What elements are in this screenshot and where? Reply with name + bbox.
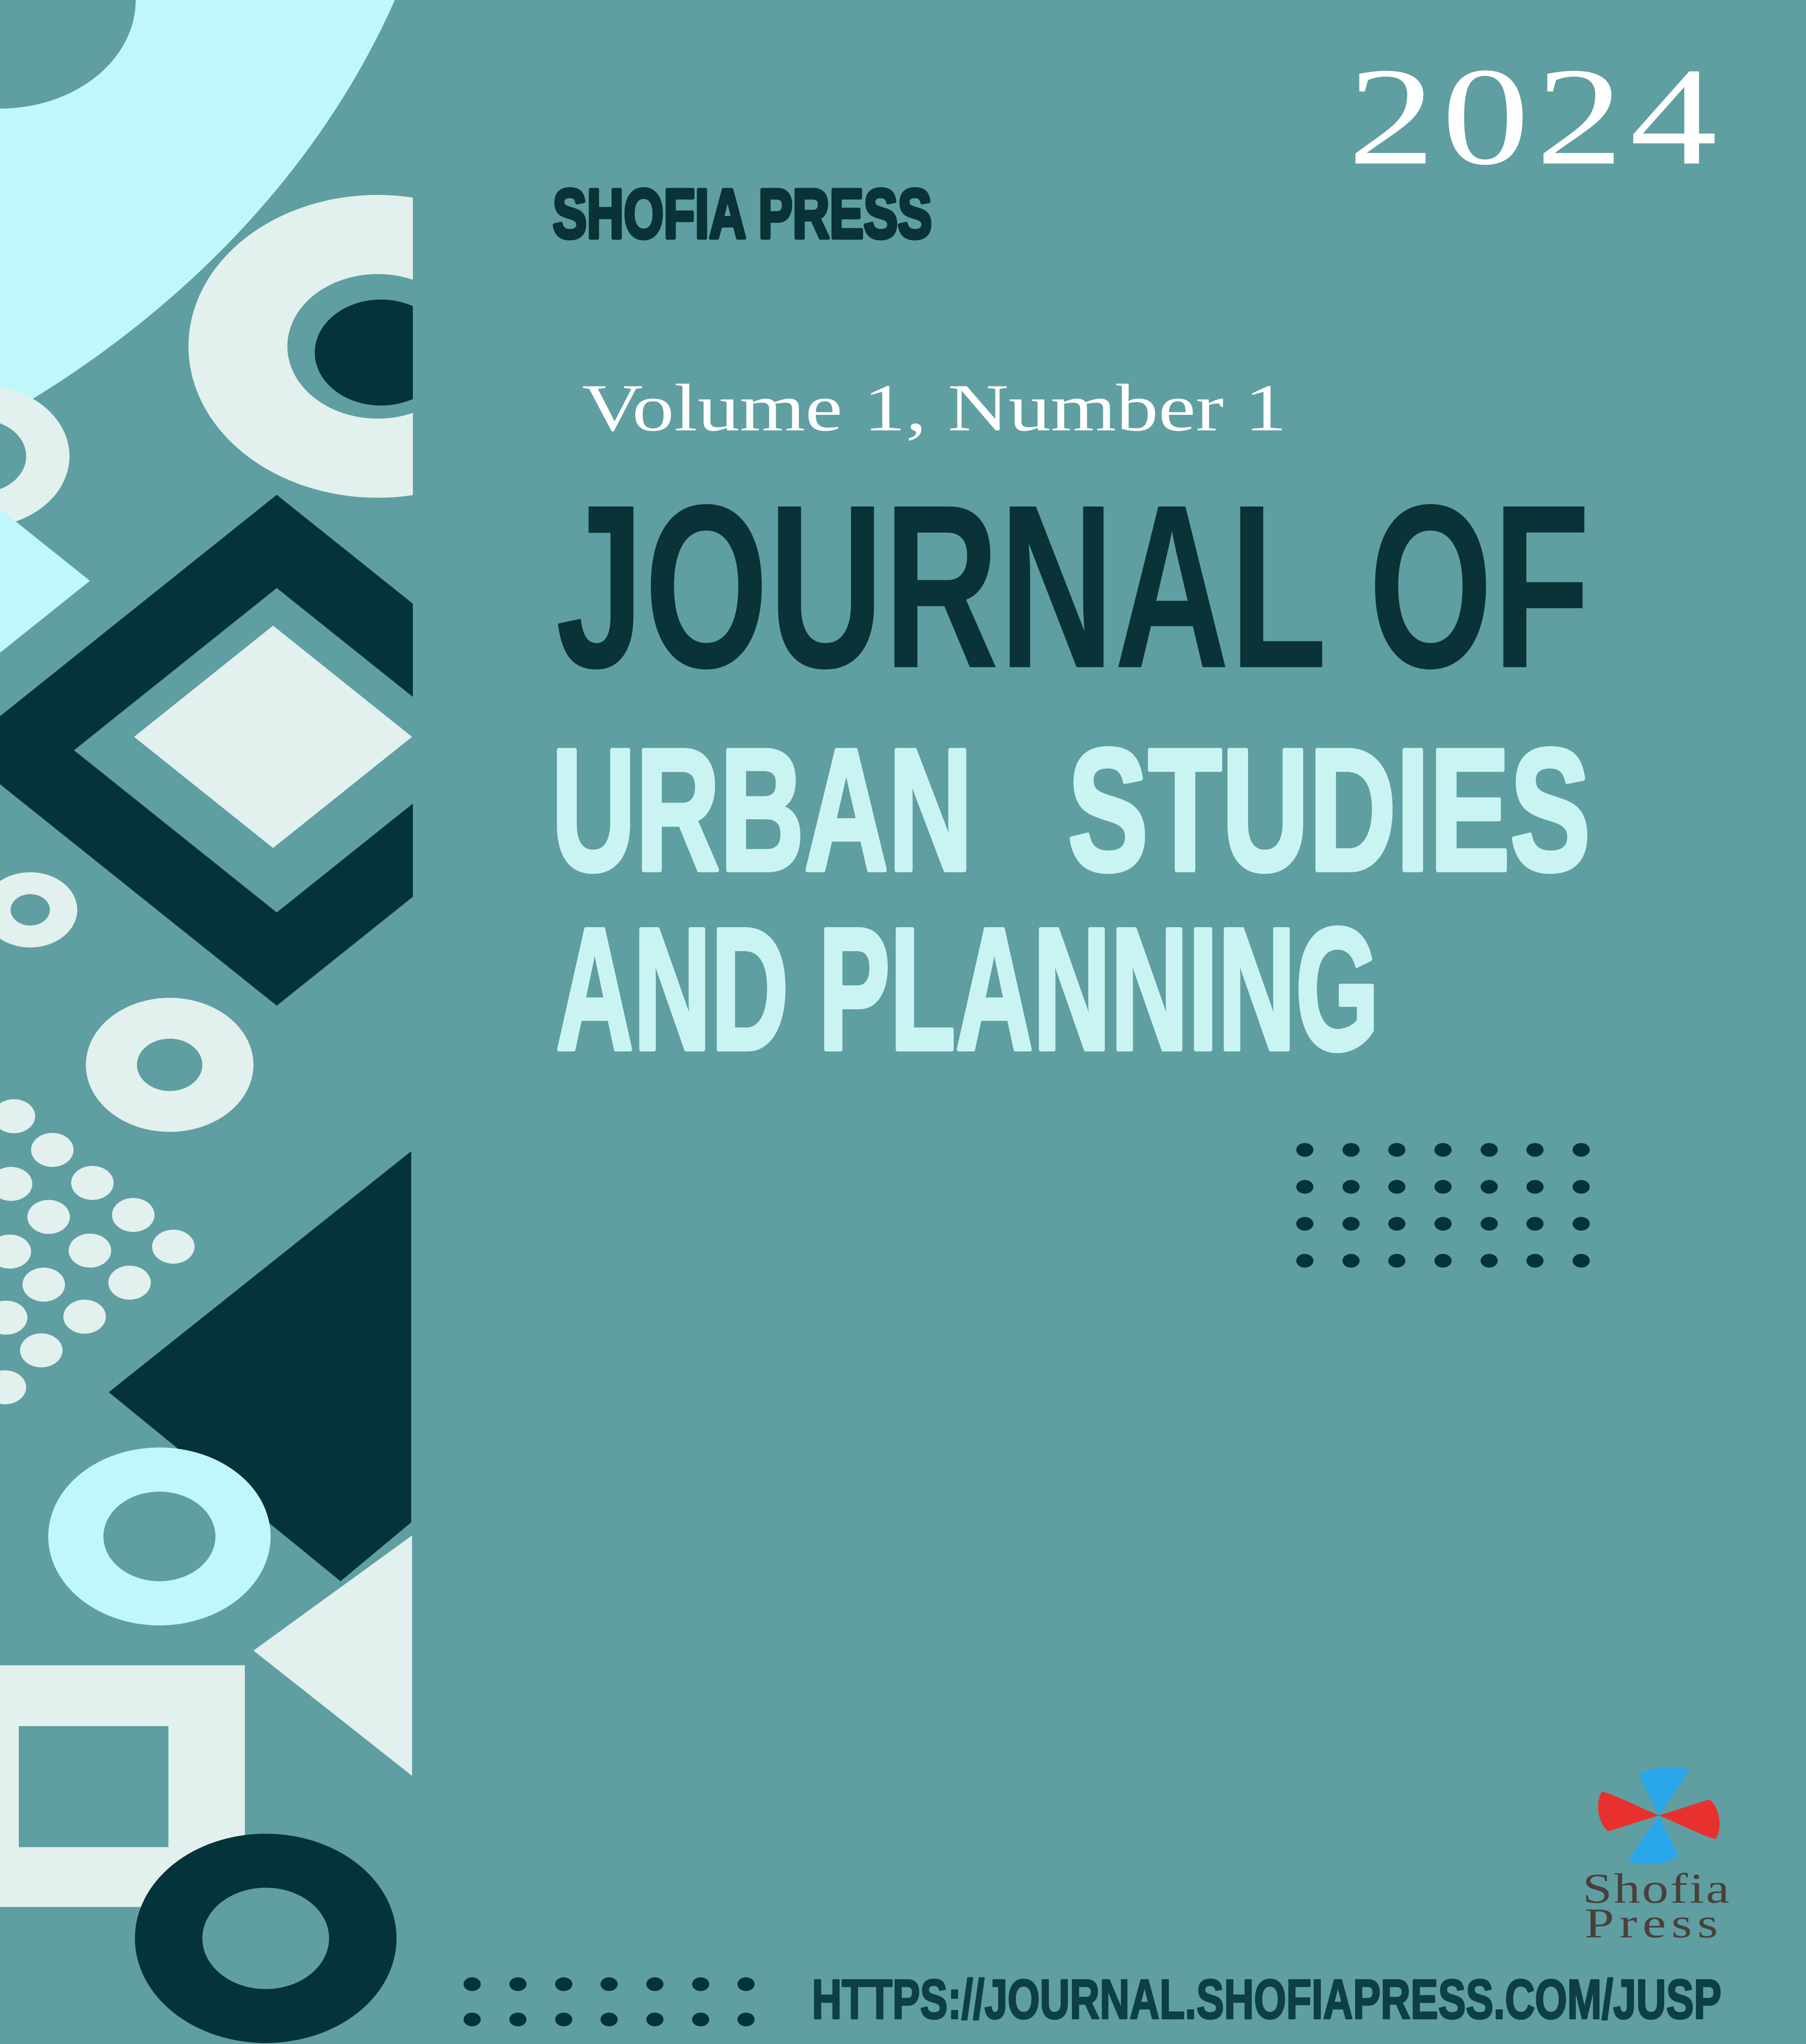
svg-text:STUDIES: STUDIES — [1068, 713, 1591, 907]
svg-text:2024: 2024 — [1348, 39, 1724, 194]
svg-text:SHOFIA PRESS: SHOFIA PRESS — [553, 175, 932, 253]
svg-text:Press: Press — [1584, 1900, 1723, 1947]
svg-text:URBAN: URBAN — [551, 713, 972, 907]
svg-text:HTTPS://JOURNAL.SHOFIAPRESS.CO: HTTPS://JOURNAL.SHOFIAPRESS.COM/JUSP — [812, 1968, 1721, 2031]
svg-text:AND PLANNING: AND PLANNING — [556, 892, 1379, 1086]
svg-text:Volume 1, Number 1: Volume 1, Number 1 — [582, 371, 1287, 445]
svg-text:JOURNAL OF: JOURNAL OF — [556, 456, 1590, 717]
